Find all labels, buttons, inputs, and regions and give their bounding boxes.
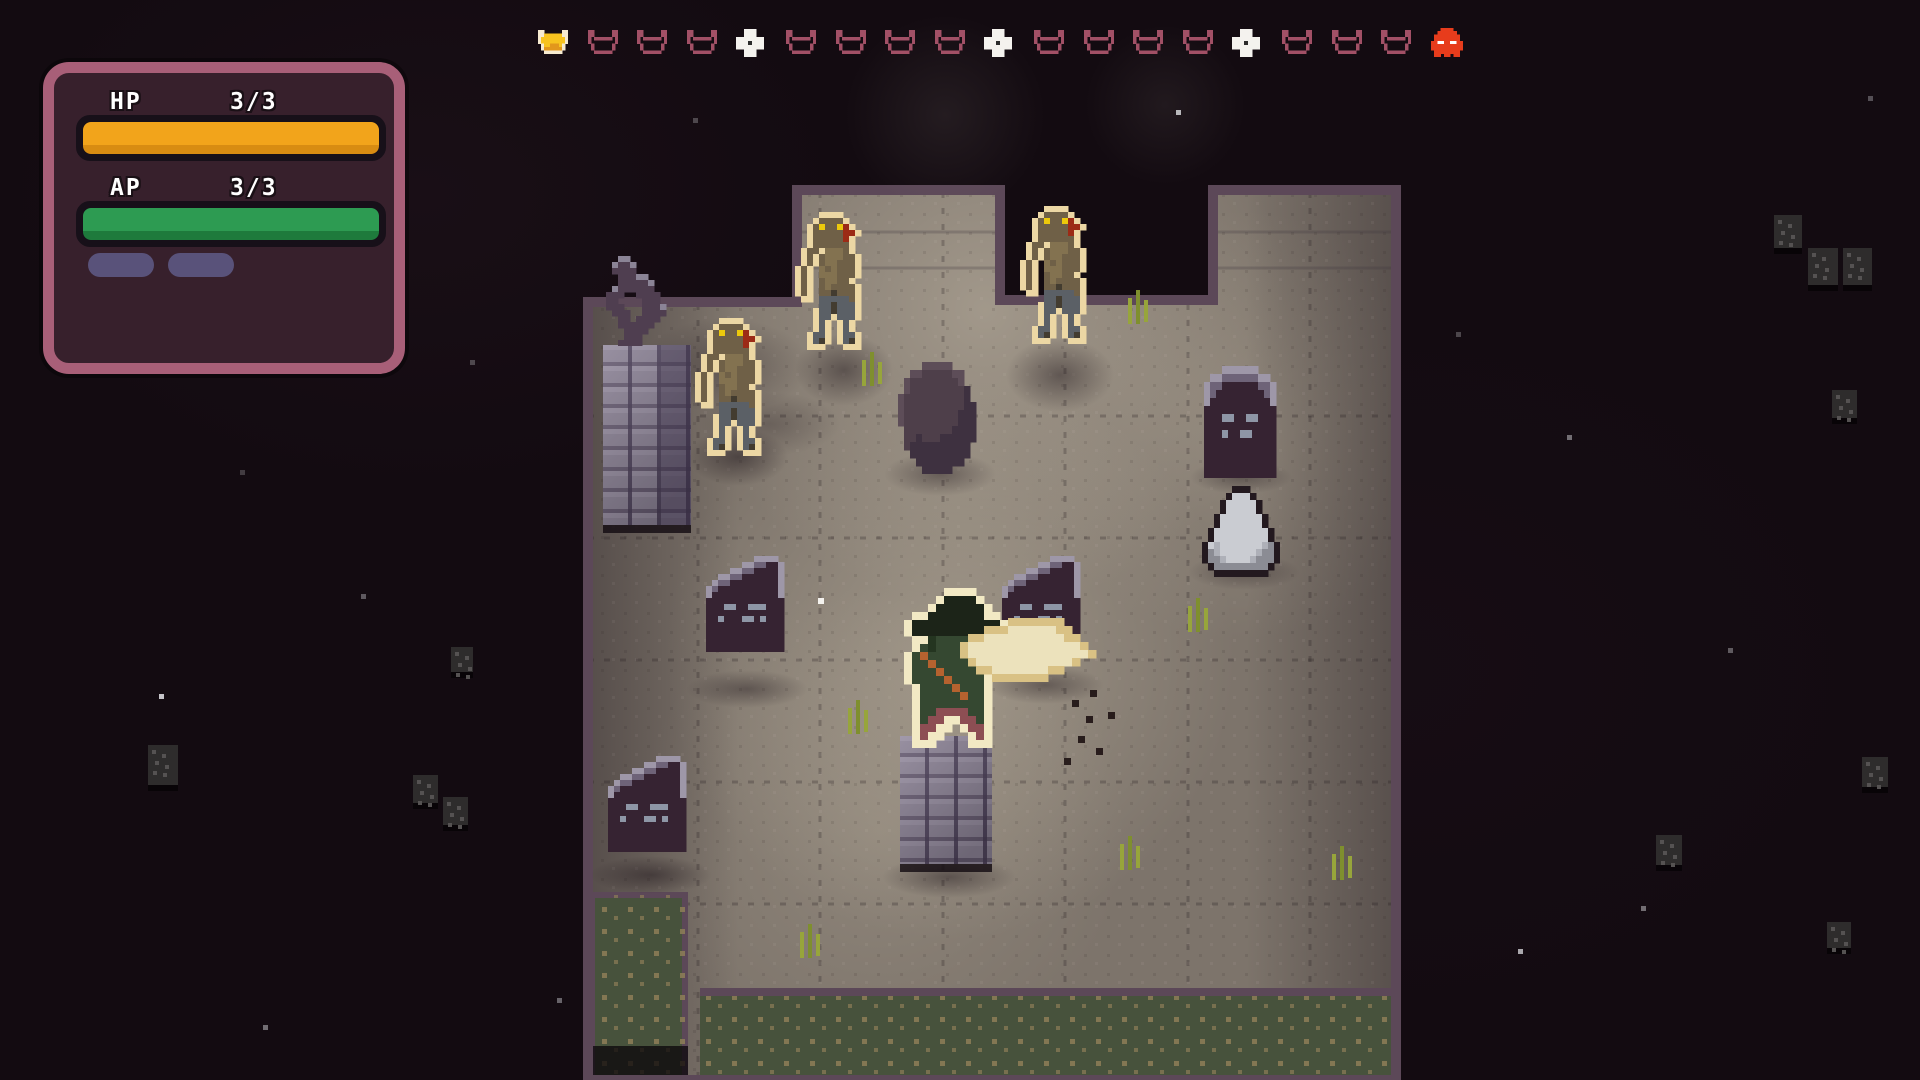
ap-value: 3/3 (230, 175, 278, 201)
turn-icon (588, 30, 618, 58)
hp-value: 3/3 (230, 89, 278, 115)
turn-icon (935, 30, 965, 58)
turn-icon (637, 30, 667, 58)
zombie-left[interactable] (695, 318, 773, 456)
enemy-turn-icon (1431, 28, 1463, 61)
blood-splatter (1090, 690, 1097, 697)
blood-splatter (1078, 736, 1085, 743)
blood-splatter (1072, 700, 1079, 707)
ground[interactable] (560, 10, 1455, 1080)
turn-icon (687, 30, 717, 58)
statue-pedestal[interactable] (603, 345, 691, 525)
blood-splatter (1108, 712, 1115, 719)
zombie-top-left[interactable] (795, 212, 873, 350)
gravestone-right[interactable] (1198, 366, 1282, 478)
turn-icon (1183, 30, 1213, 58)
ap-bar-fill (83, 208, 379, 240)
turn-icon (1282, 30, 1312, 58)
hp-label-row: HP 3/3 (88, 89, 378, 115)
hp-bar (76, 115, 386, 161)
zombie-top-right[interactable] (1020, 206, 1098, 344)
turn-icon (1034, 30, 1064, 58)
turn-icon (1332, 30, 1362, 58)
boulder[interactable] (898, 362, 982, 474)
blood-splatter (1064, 758, 1071, 765)
gravestone-bottom-left[interactable] (602, 756, 692, 852)
hp-label: HP (88, 89, 230, 115)
blood-splatter (1086, 716, 1093, 723)
blood-splatter (1096, 748, 1103, 755)
special-turn-icon (736, 29, 764, 61)
turn-icon (1084, 30, 1114, 58)
ground-sparkle (818, 598, 824, 604)
gravestone-mid-left[interactable] (700, 556, 790, 652)
ap-label: AP (88, 175, 230, 201)
turn-icon (786, 30, 816, 58)
statue[interactable] (600, 256, 678, 346)
turn-icon (1381, 30, 1411, 58)
turn-icon (1133, 30, 1163, 58)
player-pillar[interactable] (900, 736, 992, 864)
sword-slash[interactable] (944, 618, 1104, 682)
turn-icon (885, 30, 915, 58)
game-screen: HP 3/3 AP 3/3 (0, 0, 1920, 1080)
skill-slots (88, 253, 234, 277)
hud-panel: HP 3/3 AP 3/3 (43, 62, 405, 374)
player-turn-filled-icon (538, 30, 568, 58)
turn-icon (836, 30, 866, 58)
skill-slot-2[interactable] (168, 253, 234, 277)
ap-label-row: AP 3/3 (88, 175, 378, 201)
special-turn-icon (984, 29, 1012, 61)
white-rock[interactable] (1202, 486, 1280, 577)
ap-bar (76, 201, 386, 247)
hp-bar-fill (83, 122, 379, 154)
skill-slot-1[interactable] (88, 253, 154, 277)
special-turn-icon (1232, 29, 1260, 61)
